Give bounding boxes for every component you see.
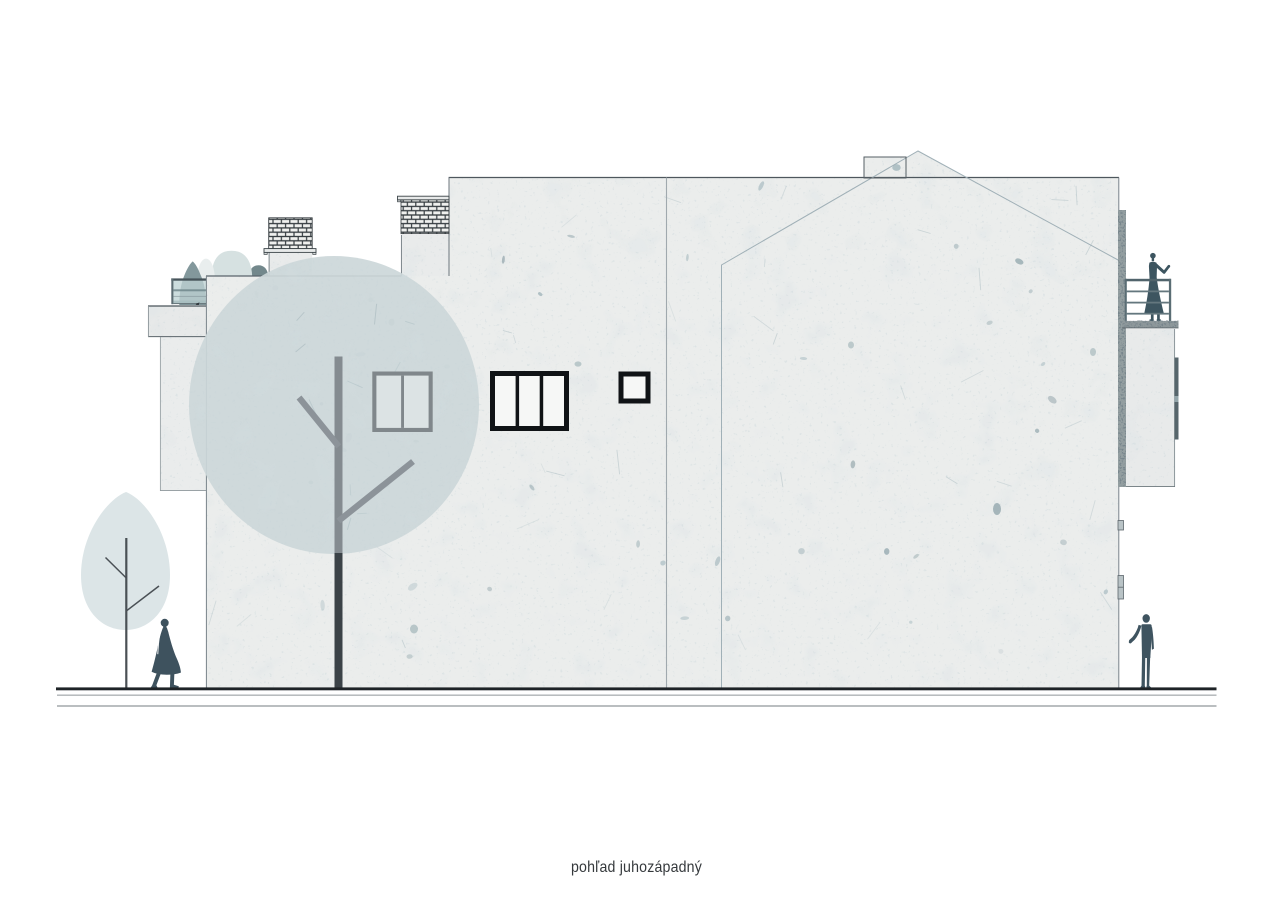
svg-text:pohľad juhozápadný: pohľad juhozápadný [571,859,702,876]
